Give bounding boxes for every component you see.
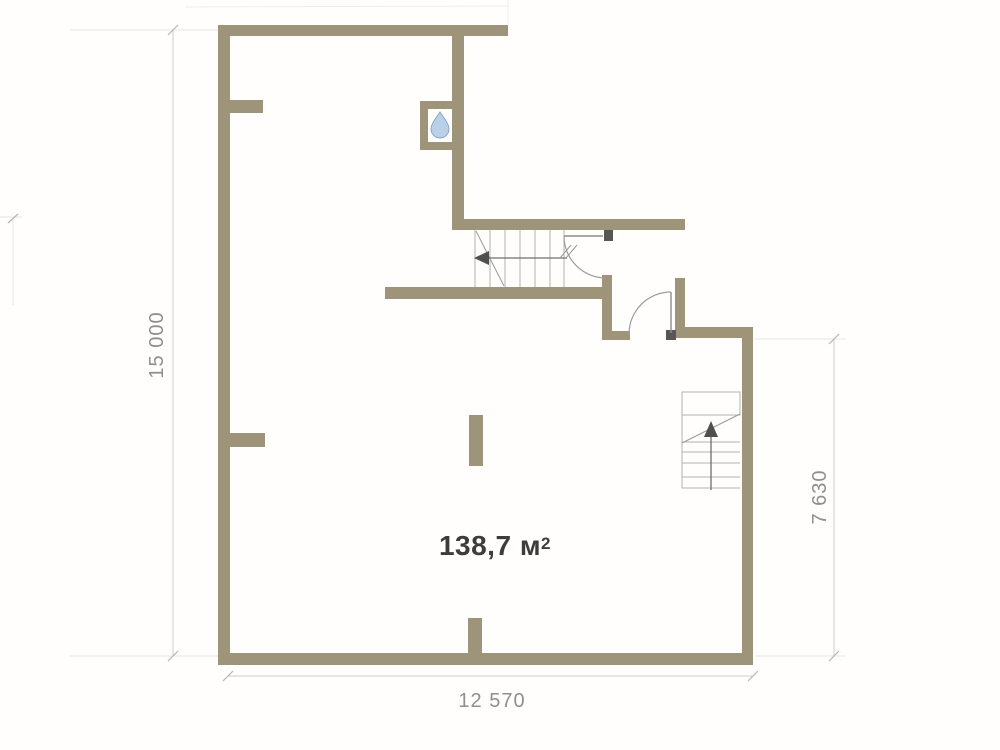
wall-segment bbox=[602, 275, 612, 333]
wall-segment bbox=[675, 327, 753, 338]
staircase-right bbox=[682, 392, 740, 490]
dimension-line-bottom bbox=[223, 671, 758, 681]
floor-plan-canvas: 15 000 12 570 7 630 138,7 м2 bbox=[0, 0, 1000, 750]
staircase-upper bbox=[474, 230, 577, 287]
wall-segment bbox=[229, 433, 265, 447]
dimension-right-label: 7 630 bbox=[809, 469, 831, 524]
wall-segment bbox=[469, 415, 483, 466]
wall-segment bbox=[468, 618, 482, 653]
walls bbox=[218, 25, 753, 665]
area-unit: м bbox=[520, 530, 541, 561]
wall-segment bbox=[218, 25, 508, 36]
wall-segment bbox=[385, 287, 605, 299]
room-area-label: 138,7 м2 bbox=[390, 530, 600, 562]
wall-segment bbox=[602, 331, 630, 340]
wall-segment bbox=[218, 27, 230, 664]
wall-segment bbox=[420, 142, 452, 150]
wall-segment bbox=[452, 219, 685, 230]
dimension-line-left bbox=[168, 25, 178, 661]
water-drop-icon bbox=[431, 112, 449, 138]
wall-segment bbox=[742, 327, 753, 664]
wall-segment bbox=[218, 653, 753, 665]
area-superscript: 2 bbox=[541, 534, 551, 553]
floor-plan-drawing: 15 000 12 570 7 630 bbox=[0, 0, 1000, 750]
door-vestibule bbox=[629, 292, 676, 340]
door-corridor bbox=[564, 230, 613, 278]
dimension-left-label: 15 000 bbox=[146, 311, 168, 378]
area-value: 138,7 bbox=[439, 530, 512, 561]
wall-segment bbox=[452, 36, 464, 222]
cropped-dimension-marks bbox=[0, 0, 509, 305]
dimension-bottom-label: 12 570 bbox=[458, 690, 525, 712]
wall-segment bbox=[229, 100, 263, 113]
